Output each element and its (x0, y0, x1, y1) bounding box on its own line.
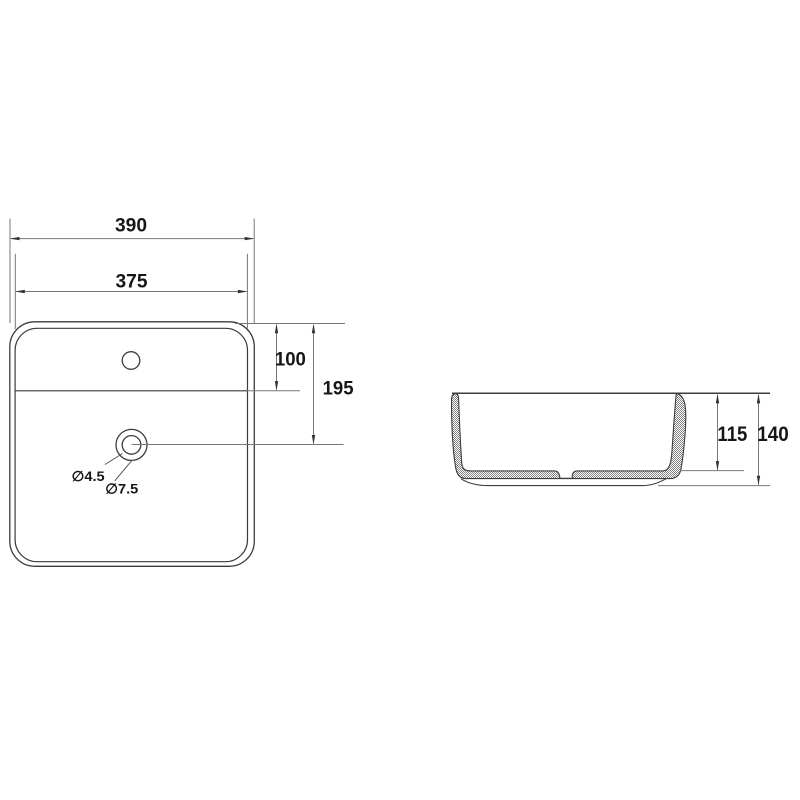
svg-text:195: 195 (323, 379, 354, 400)
svg-text:140: 140 (757, 421, 789, 446)
svg-text:375: 375 (116, 272, 148, 293)
svg-text:∅7.5: ∅7.5 (105, 481, 138, 497)
svg-text:390: 390 (115, 216, 147, 237)
svg-text:115: 115 (717, 421, 747, 446)
svg-text:100: 100 (275, 350, 306, 371)
svg-text:∅4.5: ∅4.5 (72, 468, 105, 484)
